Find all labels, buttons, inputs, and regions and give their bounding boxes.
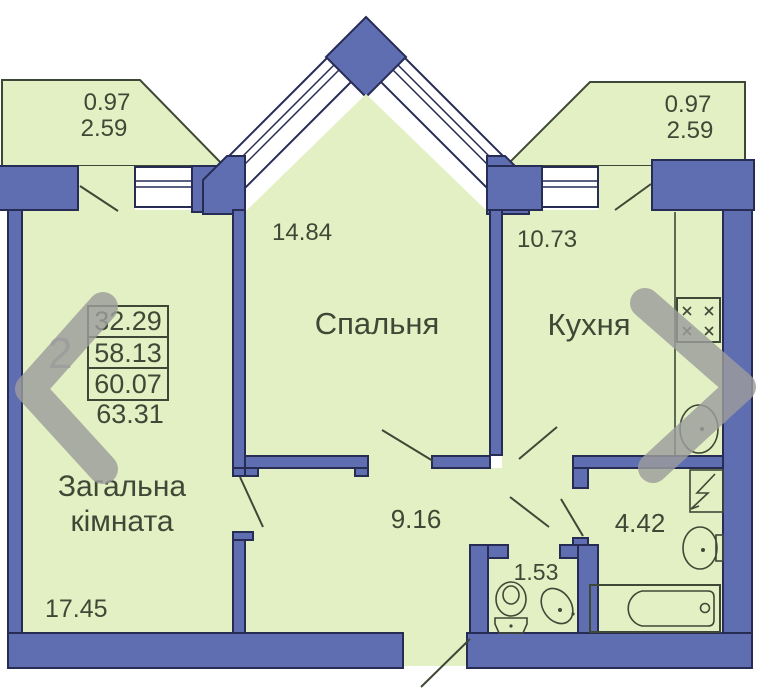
kitchen-window	[542, 167, 598, 207]
hallway-area-label: 9.16	[391, 504, 442, 534]
table-row-total-area: 58.13	[94, 338, 162, 368]
balcony-right-length-label: 2.59	[667, 117, 714, 144]
balcony-left-length-label: 2.59	[81, 115, 128, 142]
floorplan-drawing: 32.29 58.13 60.07 63.31 0.97 2.59 0.97 2…	[0, 0, 760, 699]
living-name-line1-label: Загальна	[58, 470, 186, 503]
bedroom-area-label: 14.84	[272, 219, 332, 246]
kitchen-area-label: 10.73	[517, 226, 577, 253]
floorplan-photo-viewer: 32.29 58.13 60.07 63.31 0.97 2.59 0.97 2…	[0, 0, 760, 699]
living-area-label: 17.45	[45, 595, 108, 623]
balcony-right-depth-label: 0.97	[665, 91, 712, 118]
living-name-line2-label: кімната	[70, 505, 173, 538]
balcony-left-depth-label: 0.97	[84, 89, 131, 116]
bathroom-area-label: 4.42	[615, 508, 666, 538]
table-total-label: 63.31	[96, 399, 164, 429]
table-row-reduced-area: 60.07	[94, 369, 162, 399]
bedroom-name-label: Спальня	[315, 306, 440, 341]
living-room-window	[135, 167, 192, 207]
wc-area-label: 1.53	[514, 559, 559, 585]
kitchen-name-label: Кухня	[548, 307, 631, 342]
